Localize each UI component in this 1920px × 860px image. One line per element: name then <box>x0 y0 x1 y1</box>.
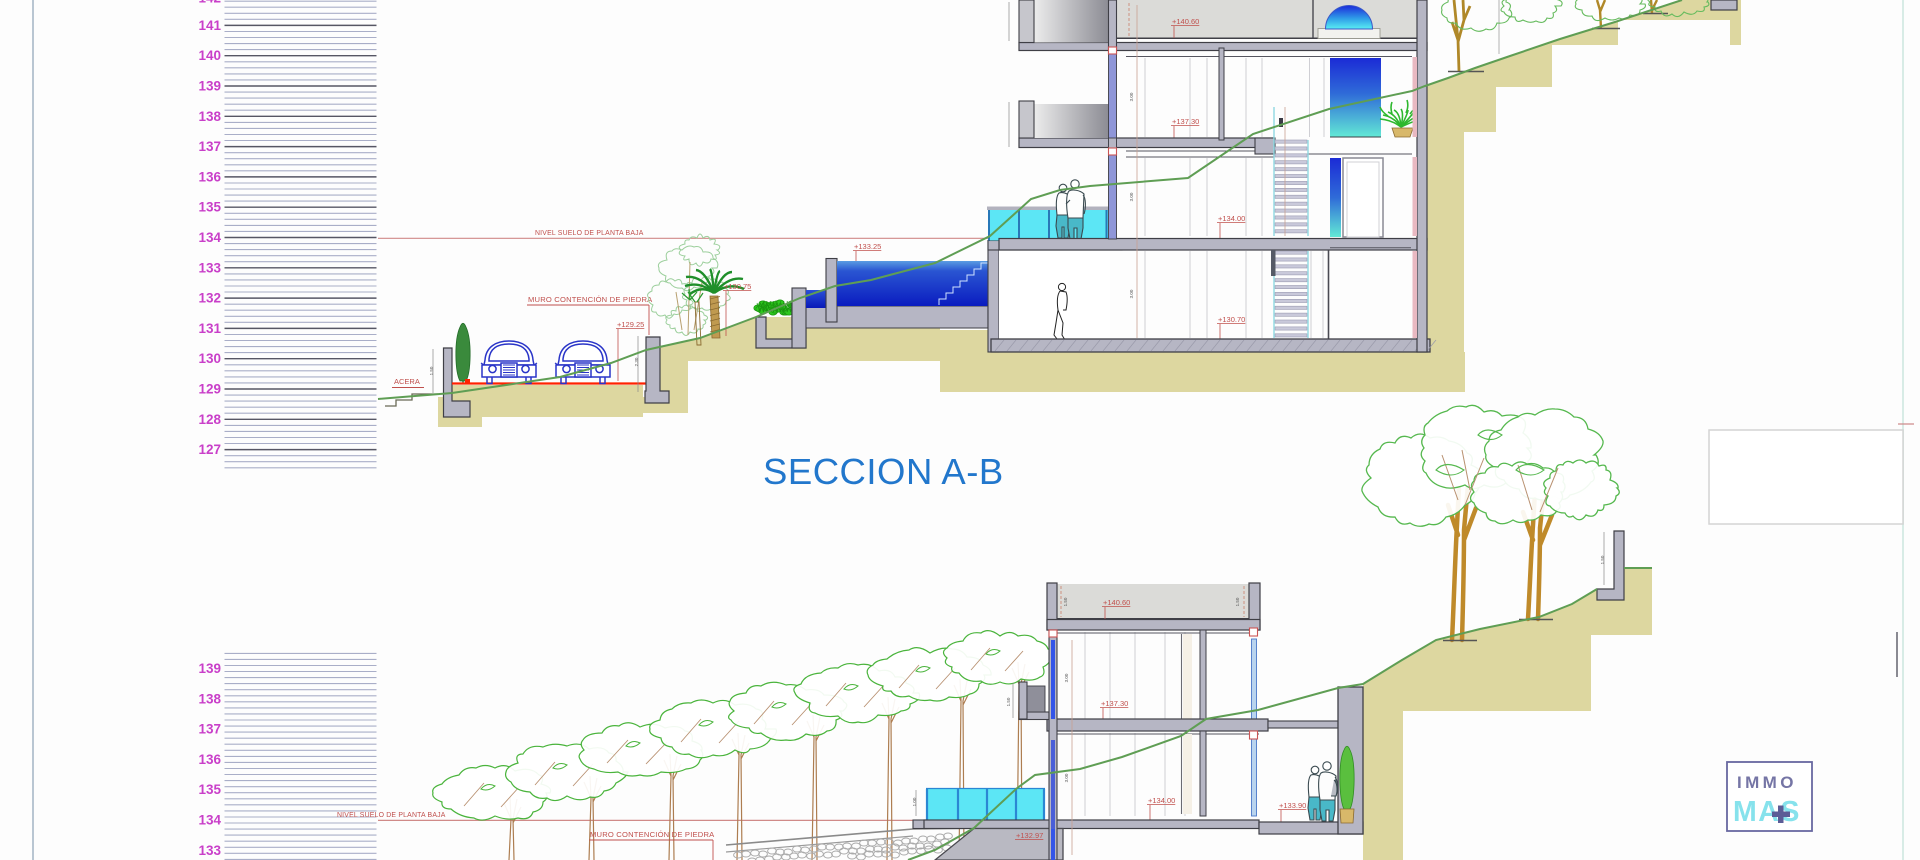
svg-text:1.50: 1.50 <box>1235 597 1240 606</box>
svg-text:134: 134 <box>198 230 221 245</box>
svg-text:139: 139 <box>198 79 221 94</box>
svg-text:140: 140 <box>198 48 221 63</box>
svg-text:1.50: 1.50 <box>1600 555 1605 564</box>
svg-text:+133.90: +133.90 <box>1279 801 1306 810</box>
svg-text:141: 141 <box>198 18 221 33</box>
svg-text:ACERA: ACERA <box>394 377 420 386</box>
svg-text:+130.75: +130.75 <box>724 282 751 291</box>
svg-text:137: 137 <box>198 722 221 737</box>
svg-text:129: 129 <box>198 382 221 397</box>
svg-text:135: 135 <box>198 782 221 797</box>
svg-text:+134.00: +134.00 <box>1148 796 1175 805</box>
svg-text:+137.30: +137.30 <box>1101 699 1128 708</box>
svg-text:+140.60: +140.60 <box>1172 17 1199 26</box>
svg-text:+137.30: +137.30 <box>1172 117 1199 126</box>
svg-text:MURO CONTENCIÓN DE PIEDRA: MURO CONTENCIÓN DE PIEDRA <box>590 830 715 839</box>
svg-text:136: 136 <box>198 752 221 767</box>
svg-text:3.00: 3.00 <box>1064 673 1069 682</box>
svg-text:133: 133 <box>198 260 221 275</box>
svg-text:+132.97: +132.97 <box>1016 831 1043 840</box>
svg-text:+130.70: +130.70 <box>1218 315 1245 324</box>
svg-text:3.00: 3.00 <box>1129 289 1134 298</box>
svg-text:1.50: 1.50 <box>1063 597 1068 606</box>
svg-text:142: 142 <box>198 0 221 6</box>
svg-text:1.50: 1.50 <box>429 366 434 375</box>
svg-text:3.00: 3.00 <box>1129 92 1134 101</box>
svg-text:1.50: 1.50 <box>1006 697 1011 706</box>
svg-text:132: 132 <box>198 291 221 306</box>
svg-text:127: 127 <box>198 442 221 457</box>
svg-text:138: 138 <box>198 109 221 124</box>
svg-text:130: 130 <box>198 351 221 366</box>
svg-text:MURO CONTENCIÓN DE PIEDRA: MURO CONTENCIÓN DE PIEDRA <box>528 295 653 304</box>
svg-text:+129.25: +129.25 <box>617 320 644 329</box>
svg-text:137: 137 <box>198 139 221 154</box>
svg-text:+140.60: +140.60 <box>1103 598 1130 607</box>
svg-text:134: 134 <box>198 813 221 828</box>
svg-text:IMMO: IMMO <box>1737 773 1797 792</box>
svg-text:131: 131 <box>198 321 221 336</box>
svg-text:138: 138 <box>198 691 221 706</box>
svg-text:135: 135 <box>198 200 221 215</box>
svg-text:SECCION A-B: SECCION A-B <box>763 451 1004 492</box>
svg-text:3.00: 3.00 <box>1064 773 1069 782</box>
svg-text:133: 133 <box>198 843 221 858</box>
svg-text:+134.00: +134.00 <box>1218 214 1245 223</box>
svg-text:MAS: MAS <box>1733 796 1801 828</box>
svg-text:1.00: 1.00 <box>912 797 917 806</box>
svg-text:136: 136 <box>198 169 221 184</box>
svg-text:139: 139 <box>198 661 221 676</box>
svg-text:2.30: 2.30 <box>634 357 639 366</box>
svg-text:3.00: 3.00 <box>1129 192 1134 201</box>
svg-text:NIVEL SUELO DE PLANTA BAJA: NIVEL SUELO DE PLANTA BAJA <box>535 230 644 237</box>
svg-text:NIVEL SUELO DE PLANTA BAJA: NIVEL SUELO DE PLANTA BAJA <box>337 812 446 819</box>
svg-text:128: 128 <box>198 412 221 427</box>
svg-text:+133.25: +133.25 <box>854 242 881 251</box>
